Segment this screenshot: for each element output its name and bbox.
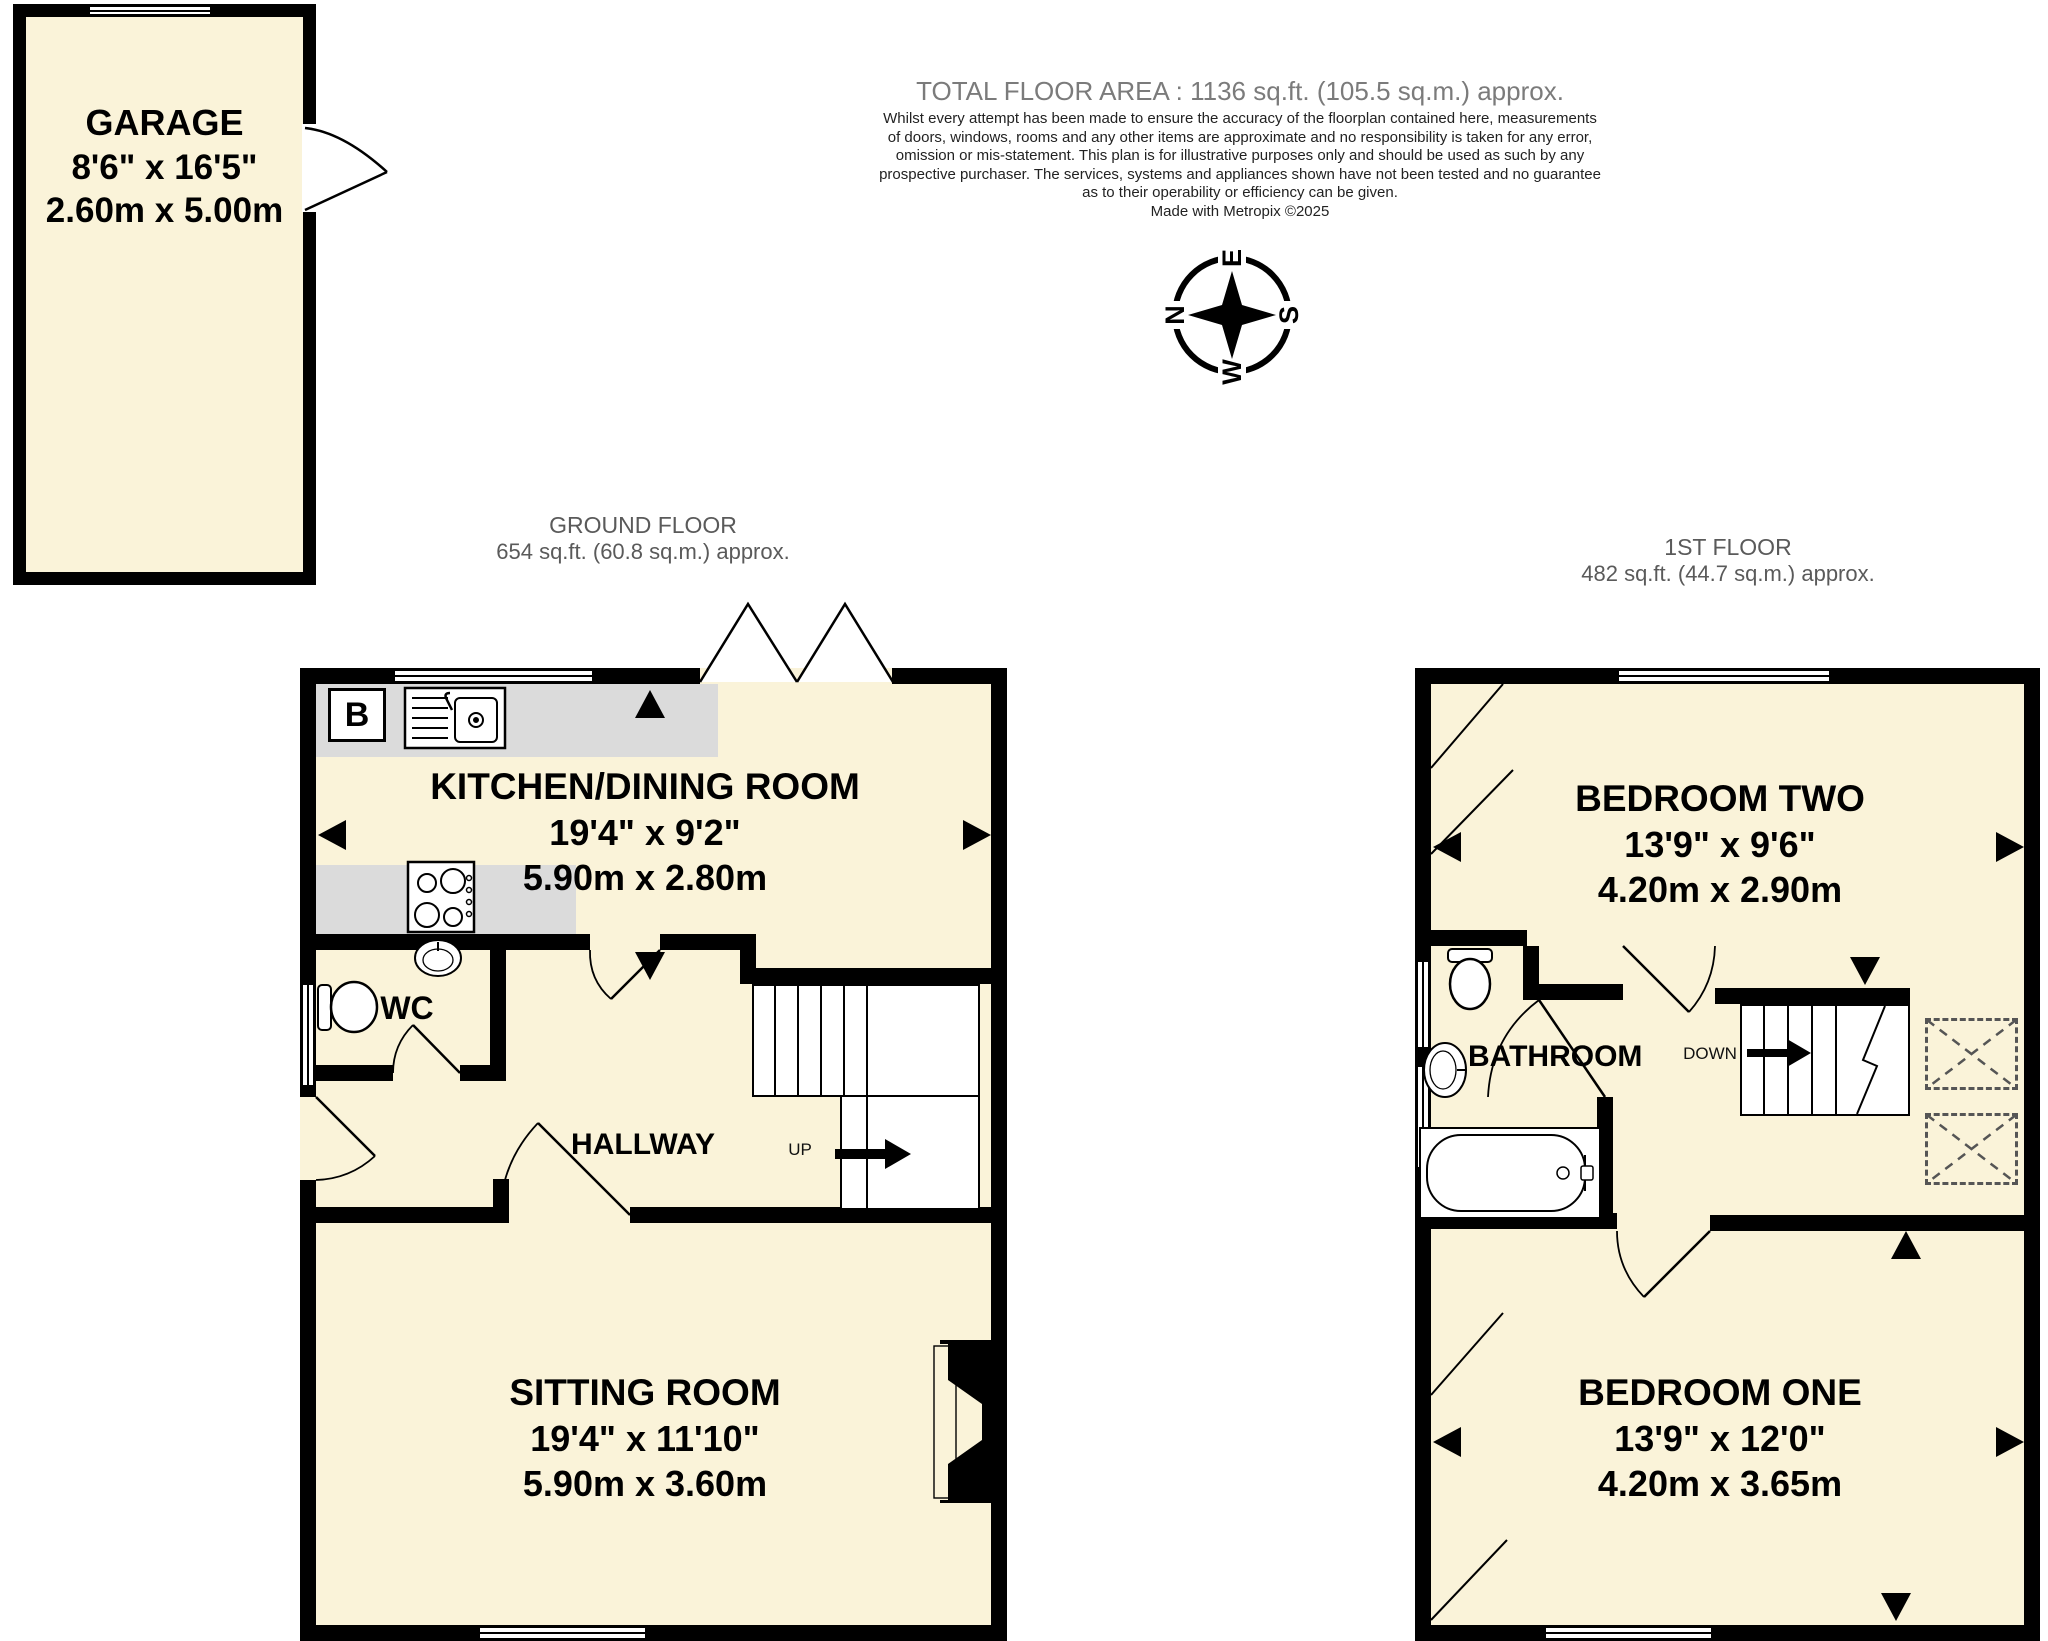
stairs-arrow-icon	[1747, 1039, 1811, 1067]
door-leaf	[316, 1097, 375, 1156]
door-arc	[305, 128, 387, 172]
hob-icon	[408, 862, 474, 932]
bathroom-door-swing	[1488, 1000, 1605, 1097]
ground-floor-details	[300, 668, 1007, 1641]
door-leaf	[305, 172, 387, 210]
door-leaf	[538, 1123, 630, 1215]
bedroom-one-door-swing	[1617, 1231, 1710, 1297]
door-arc	[500, 1123, 538, 1215]
toilet-icon	[318, 982, 377, 1032]
compass-east-label: E	[1217, 249, 1247, 267]
disclaimer-line: Whilst every attempt has been made to en…	[840, 110, 1640, 129]
door-arc	[590, 950, 611, 999]
bedroom-one-wardrobe-doors	[1431, 1313, 1507, 1620]
door-arc	[1689, 946, 1715, 1012]
stair-treads	[1764, 1006, 1885, 1114]
kitchen-door-swing	[590, 950, 660, 999]
disclaimer-line: as to their operability or efficiency ca…	[840, 184, 1640, 203]
kitchen-sink-icon	[405, 688, 505, 748]
disclaimer-line: prospective purchaser. The services, sys…	[840, 166, 1640, 185]
french-door-leaf	[700, 604, 797, 682]
made-with-credit: Made with Metropix ©2025	[840, 203, 1640, 222]
ground-floor-area: 654 sq.ft. (60.8 sq.m.) approx.	[393, 539, 893, 565]
ground-floor-label: GROUND FLOOR	[393, 512, 893, 539]
door-leaf	[1539, 1000, 1605, 1097]
compass-north-label: N	[1160, 305, 1190, 325]
garage-door-swing	[13, 4, 316, 585]
stair-treads	[775, 986, 867, 1208]
front-door-swing	[316, 1097, 375, 1180]
bedroom-two-door-swing	[1623, 946, 1715, 1012]
door-arc	[1617, 1231, 1644, 1297]
ground-floor-caption: GROUND FLOOR 654 sq.ft. (60.8 sq.m.) app…	[393, 512, 893, 565]
door-arc	[393, 1025, 413, 1073]
compass-rose-icon: E N S W	[1147, 235, 1317, 405]
wc-door-swing	[393, 1025, 460, 1073]
first-floor-area: 482 sq.ft. (44.7 sq.m.) approx.	[1478, 561, 1978, 587]
french-doors-icon	[700, 604, 893, 682]
floorplan-page: TOTAL FLOOR AREA : 1136 sq.ft. (105.5 sq…	[0, 0, 2048, 1641]
door-leaf	[1644, 1231, 1710, 1297]
first-floor-caption: 1ST FLOOR 482 sq.ft. (44.7 sq.m.) approx…	[1478, 534, 1978, 587]
stairs-arrow-icon	[835, 1139, 911, 1169]
sitting-room-door-swing	[500, 1123, 630, 1215]
disclaimer-line: of doors, windows, rooms and any other i…	[840, 129, 1640, 148]
bathtub-icon	[1420, 1128, 1600, 1218]
compass-south-label: S	[1274, 306, 1304, 324]
door-leaf	[611, 950, 660, 999]
door-arc	[316, 1156, 375, 1180]
basin-icon	[415, 940, 461, 976]
door-leaf	[413, 1025, 460, 1073]
disclaimer-line: omission or mis-statement. This plan is …	[840, 147, 1640, 166]
total-floor-area: TOTAL FLOOR AREA : 1136 sq.ft. (105.5 sq…	[740, 76, 1740, 107]
door-arc	[1488, 1000, 1539, 1097]
french-door-leaf	[797, 604, 893, 682]
compass-star	[1188, 271, 1276, 359]
chimney-breast	[934, 1340, 991, 1503]
disclaimer-block: Whilst every attempt has been made to en…	[840, 110, 1640, 221]
door-leaf	[1623, 946, 1689, 1012]
skylight-cross-lines	[1927, 1020, 2016, 1183]
basin-icon	[1424, 1043, 1466, 1097]
first-floor-label: 1ST FLOOR	[1478, 534, 1978, 561]
bedroom-two-wardrobe-doors	[1431, 684, 1513, 854]
first-floor-details	[1415, 668, 2040, 1641]
toilet-icon	[1448, 949, 1492, 1009]
compass-west-label: W	[1217, 359, 1247, 385]
